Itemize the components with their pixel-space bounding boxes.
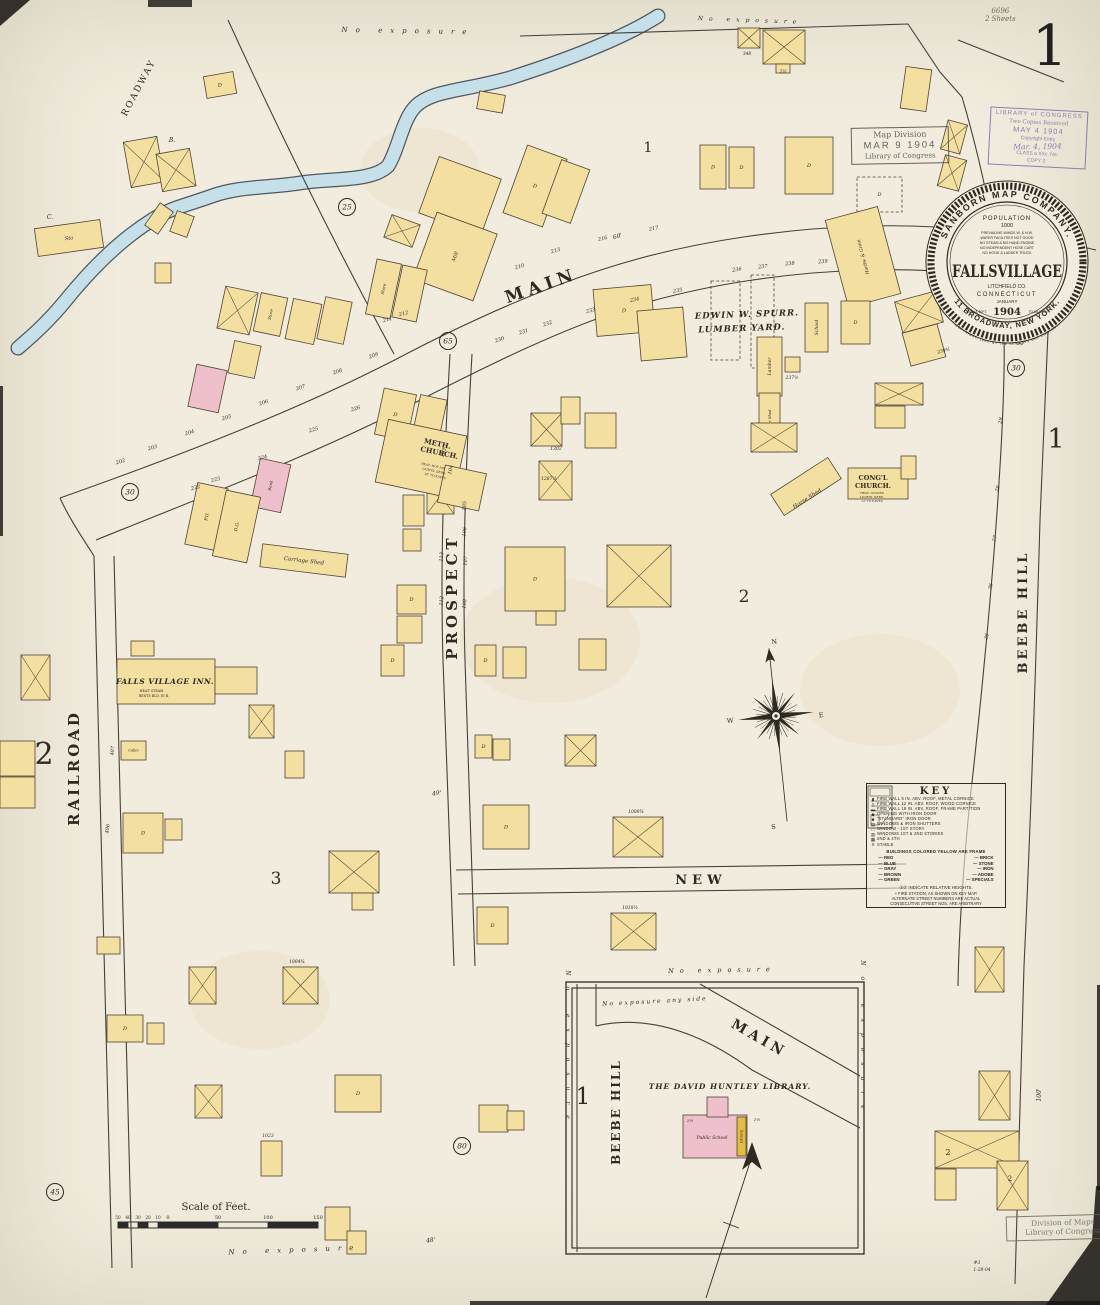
circled-number: 30 [1008,360,1025,377]
svg-text:JANUARY: JANUARY [997,299,1018,304]
svg-text:NO HOOK & LADDER TRUCK: NO HOOK & LADDER TRUCK [982,251,1032,255]
map-label: No exposure [340,26,474,36]
building-label: D [710,165,715,171]
scale-title: Scale of Feet. [181,1202,250,1213]
map-label: 1302 [550,446,562,452]
plate-note: 6696 2 Sheets [985,8,1016,23]
building [317,297,352,345]
building [97,937,120,954]
svg-text:100: 100 [263,1215,273,1221]
svg-text:40: 40 [125,1215,131,1220]
svg-text:80: 80 [457,1142,467,1151]
map-label: C. [47,214,53,221]
building-label: D [408,597,413,603]
building-label: D [852,320,857,326]
map-label: 1004¾ [289,958,305,965]
building: D [381,645,404,676]
building [531,413,562,446]
building: D [785,137,833,194]
circled-number: 45 [47,1184,64,1201]
building-label: School [814,319,820,335]
building [155,263,171,283]
building [579,639,606,670]
map-label: 1023 [262,1133,274,1139]
circled-number: 30 [122,484,139,501]
svg-text:45: 45 [49,1188,60,1197]
building: D [475,735,492,758]
building-label: D [738,165,743,171]
map-label: 113 [439,552,446,562]
building: D [729,147,754,188]
map-division-stamp: Map Division MAR 9 1904 Library of Congr… [851,126,950,164]
building [979,1071,1010,1120]
building: D [505,547,565,611]
building-label: D [217,82,223,89]
key-color-row: — GREEN— SPECIALS [878,877,993,883]
building [215,667,257,694]
building-label: D [876,192,881,198]
svg-text:NO INDEPENDENT HOSE CART: NO INDEPENDENT HOSE CART [980,246,1035,250]
building-label: Lumber [767,357,773,377]
label-huntley-library: THE DAVID HUNTLEY LIBRARY. [649,1082,811,1091]
street-label-beebe-hill: BEEBE HILL [1016,551,1031,674]
svg-text:10: 10 [155,1215,161,1220]
map-label: 205 [220,414,232,423]
building [785,357,800,372]
map-label: 238 [784,261,795,268]
street-label-new: NEW [675,873,726,888]
building [738,28,760,48]
map-label: 108 [462,599,469,609]
building: D [841,301,870,344]
map-label: 29 [997,416,1005,425]
building [613,817,663,857]
map-label: 230 [493,335,506,344]
street-label-main-inset: MAIN [728,1016,789,1061]
map-label: No exposure any side [601,995,708,1008]
building [900,66,932,111]
map-key: KEY ▮FIRE WALL 6 IN. ABV. ROOF, METAL CO… [866,783,1006,908]
building-label: Cabin [128,749,139,753]
scan-artifact [0,386,3,536]
road-line [812,24,962,97]
scan-artifact [0,0,30,26]
building [228,341,261,379]
map-label: No exposure [859,959,866,1120]
map-label: 107 [463,555,470,566]
map-label: 12' TO EAVES [861,499,883,503]
sanborn-seal: SANBORN MAP COMPANY. 11 BROADWAY, NEW YO… [917,172,1097,352]
street-label-main: MAIN [502,265,580,308]
building: D [397,585,426,614]
map-label: 25 [983,633,991,642]
compass-letter: N [771,637,778,646]
circled-number: 25 [339,199,356,216]
map-label: 2 [1008,1175,1012,1183]
building [503,647,526,678]
scale-bar: Scale of Feet.5040302010050100150 [115,1202,322,1228]
circled-number: 65 [440,333,457,350]
map-label: 223 [209,476,221,485]
building [249,705,274,738]
svg-text:30: 30 [1011,364,1021,373]
map-label: 233 [584,307,596,316]
building [285,751,304,778]
key-color-table: — RED— BRICK— BLUE— STONE— GRAY— IRON— B… [878,855,993,883]
block-number: 2 [739,587,750,607]
building [325,1207,350,1240]
building: D [203,72,236,99]
building: Cabin [121,741,146,760]
building [397,616,422,643]
building: Hardw. & Grain [825,207,900,308]
building [131,641,154,656]
scan-artifact [1046,1186,1100,1305]
map-label: 239 [817,259,829,266]
key-row-label: STABLE [877,843,894,848]
map-label: 216 [596,235,608,244]
building [637,307,687,361]
building-label: D [389,658,394,664]
map-label: 204 [183,429,195,438]
map-label: 48' [425,1236,437,1244]
circled-number: 80 [454,1138,471,1155]
building [0,777,35,808]
map-label: 1018½ [622,904,638,911]
building [875,383,923,405]
svg-text:50: 50 [215,1215,221,1221]
building [751,423,797,452]
building-label: D [122,1026,127,1032]
seal-year: 1904 [993,307,1021,318]
building [217,286,258,335]
label-public-school: Public School [696,1135,729,1141]
scan-artifact [470,1301,1100,1305]
map-label: 211 [381,316,393,325]
map-label: 406 [104,823,112,835]
road-line [60,498,94,556]
block-number: 3 [271,869,282,889]
building [329,851,379,893]
map-label: 1-28-04 [973,1267,990,1273]
block-number: 1 [576,1084,591,1110]
building [975,947,1004,992]
map-label: 208 [331,368,343,377]
svg-text:0: 0 [166,1215,169,1221]
map-label: 203 [146,444,158,453]
page-number: 1 [1032,14,1068,79]
sanborn-map-page: DStaDDDDDMillStoreStoreDBankP.O.D.G.Carr… [0,0,1100,1305]
street-label-prospect: PROSPECT [443,534,461,659]
building [585,413,616,448]
map-label: No exposure [564,969,571,1130]
map-label: 26 [987,582,995,592]
building [477,91,506,113]
map-label: 1008¾ [628,808,644,815]
svg-text:LITCHFIELD CO.: LITCHFIELD CO. [988,284,1027,290]
key-row: XSTABLE [869,842,1003,847]
map-label: 210 [513,263,526,272]
building-label: Sta [65,235,74,242]
block-number: 1 [1047,424,1064,455]
building [384,215,420,248]
compass-letter: W [727,716,735,725]
map-label: 217 [648,225,660,233]
building-horse-shed [771,457,842,515]
svg-text:NO STEAM & NO HAND ENGINE: NO STEAM & NO HAND ENGINE [980,241,1035,245]
svg-text:65: 65 [443,337,453,346]
map-label: 237 [757,263,769,270]
building-label: D [532,577,537,583]
map-label: #3 [974,1260,981,1266]
svg-text:SCALE 50FT.: SCALE 50FT. [967,310,987,314]
map-label: 225 [307,426,319,435]
building: School [805,303,828,352]
building [997,1161,1028,1210]
building-label: D [806,163,811,169]
building-label: D [480,744,485,750]
map-label: 209 [367,351,380,361]
street-label-roadway: ROADWAY [120,58,158,118]
building: D [107,1015,143,1042]
block-number: 2 [34,737,53,772]
building [147,1023,164,1044]
building-label: D [482,658,487,664]
map-label: B. [168,137,175,144]
compass-letter: S [771,823,776,831]
street-label-beebe-hill-inset: BEEBE HILL [609,1059,623,1165]
map-label: 112 [439,596,446,606]
road-line [700,984,860,1076]
building [285,298,322,344]
seal-population-label: POPULATION [983,216,1031,222]
map-label: 105 [462,501,469,511]
map-label: No exposure [697,15,803,26]
svg-text:30: 30 [125,488,135,497]
map-label: 2½ [686,1118,694,1123]
svg-text:30: 30 [135,1215,141,1220]
building [283,967,318,1004]
building [403,495,424,526]
stamp-handwriting: Mar. 4, 1904 [990,141,1084,152]
key-footer: ①② INDICATE RELATIVE HEIGHTS.+ FIRE STAT… [869,885,1003,907]
map-label: RENTS BLD. IN B. [139,694,169,698]
building-label: Library [740,1129,744,1144]
building [707,1097,728,1117]
building [607,545,671,607]
building: Store [253,293,288,337]
building [565,735,596,766]
map-label: No exposure [667,965,776,975]
building [352,893,373,910]
svg-text:50: 50 [115,1215,121,1220]
building: D [123,813,163,853]
svg-text:150: 150 [313,1215,323,1221]
seal-city-name: FALLSVILLAGE [952,262,1062,282]
building: Lumber [757,337,782,396]
map-label: 232 [541,320,553,329]
svg-text:WATER FACILITIES NOT GOOD: WATER FACILITIES NOT GOOD [980,236,1033,240]
street-label-railroad: RAILROAD [65,710,83,826]
map-label: 106 [462,526,469,537]
building-label: D [503,825,508,831]
building-label: D [621,308,627,314]
north-arrow [706,1142,762,1298]
building-carriage-shed: Carriage Shed [260,544,348,577]
map-label: LUMBER YARD. [697,322,786,335]
road-line [458,888,906,894]
building: D [700,145,726,189]
map-label: 236 [731,266,743,273]
building-label: D [489,923,494,929]
map-label: HEAT: STEAM. [140,689,165,693]
map-label: 231 [517,328,529,337]
map-label: No exposure [227,1244,361,1257]
block-number: 1 [644,140,653,156]
map-label: 213 [549,247,561,256]
svg-text:CONNECTICUT: CONNECTICUT [977,292,1037,298]
map-label: 226 [349,405,362,414]
map-label: 2½ [778,68,786,75]
building [561,397,580,424]
svg-text:25: 25 [341,203,352,212]
building [261,1141,282,1176]
building [403,529,421,551]
building [875,406,905,428]
key-footer-line: CONSECUTIVE STREET NOS. ARE ARBITRARY [869,901,1003,906]
road-line [456,864,906,870]
map-label: 49' [431,789,443,797]
svg-text:PREVAILING WINDS W. & N.W.: PREVAILING WINDS W. & N.W. [981,231,1033,235]
seal-population: 1000 [1001,223,1013,229]
building-library: Library [737,1117,746,1156]
svg-text:20: 20 [145,1215,151,1220]
library-of-congress-stamp: LIBRARY of CONGRESS Two Copies Received … [988,106,1089,169]
building [479,1105,508,1132]
label-spurr: EDWIN W. SPURR. [694,308,800,322]
key-symbol: X [869,842,877,847]
building: D [857,177,902,212]
road-line [1015,332,1048,1284]
building: D [335,1075,381,1112]
building: D [483,805,529,849]
building: D [475,645,496,676]
map-label: 60' [612,232,623,241]
map-label: 2 [945,1148,950,1157]
building [493,739,510,760]
building: Sta [34,220,103,257]
map-label: 206 [257,398,270,407]
key-yellow-note: BUILDINGS COLORED YELLOW ARE FRAME [869,849,1003,854]
building [901,456,916,479]
label-falls-village-inn: FALLS VILLAGE INN. [115,677,214,686]
map-label: 407 [109,745,117,757]
building [21,655,50,700]
building [536,611,556,625]
building [935,1169,956,1200]
map-label: 207 [294,383,307,392]
map-label: CHURCH. [855,482,891,490]
building [0,741,35,776]
building [763,30,805,64]
building-label: D [140,831,145,837]
building [195,1085,222,1118]
map-label: 27 [991,534,999,544]
map-label: 202 [114,458,126,467]
map-label: 348 [743,51,752,57]
building [188,364,227,413]
building [611,913,656,950]
age-spot [800,634,960,746]
map-label: 1½ [754,1117,761,1122]
map-label: 28 [994,485,1002,494]
building [156,148,196,191]
building [189,967,216,1004]
building-label: D [355,1091,360,1097]
map-label: 237½ [785,374,799,381]
scan-artifact [148,0,192,7]
svg-text:TO AN INCH: TO AN INCH [1029,310,1048,314]
map-label: 1287½ [541,475,557,482]
road-line [94,556,112,1268]
division-of-maps-stamp: Division of Maps Library of Congress [1006,1214,1100,1242]
building: D [477,907,508,944]
label-congl-church: CONG'L [859,474,888,482]
map-label: 100' [1036,1088,1043,1101]
building [507,1111,524,1130]
building [165,819,182,840]
key-diagram [867,785,893,829]
